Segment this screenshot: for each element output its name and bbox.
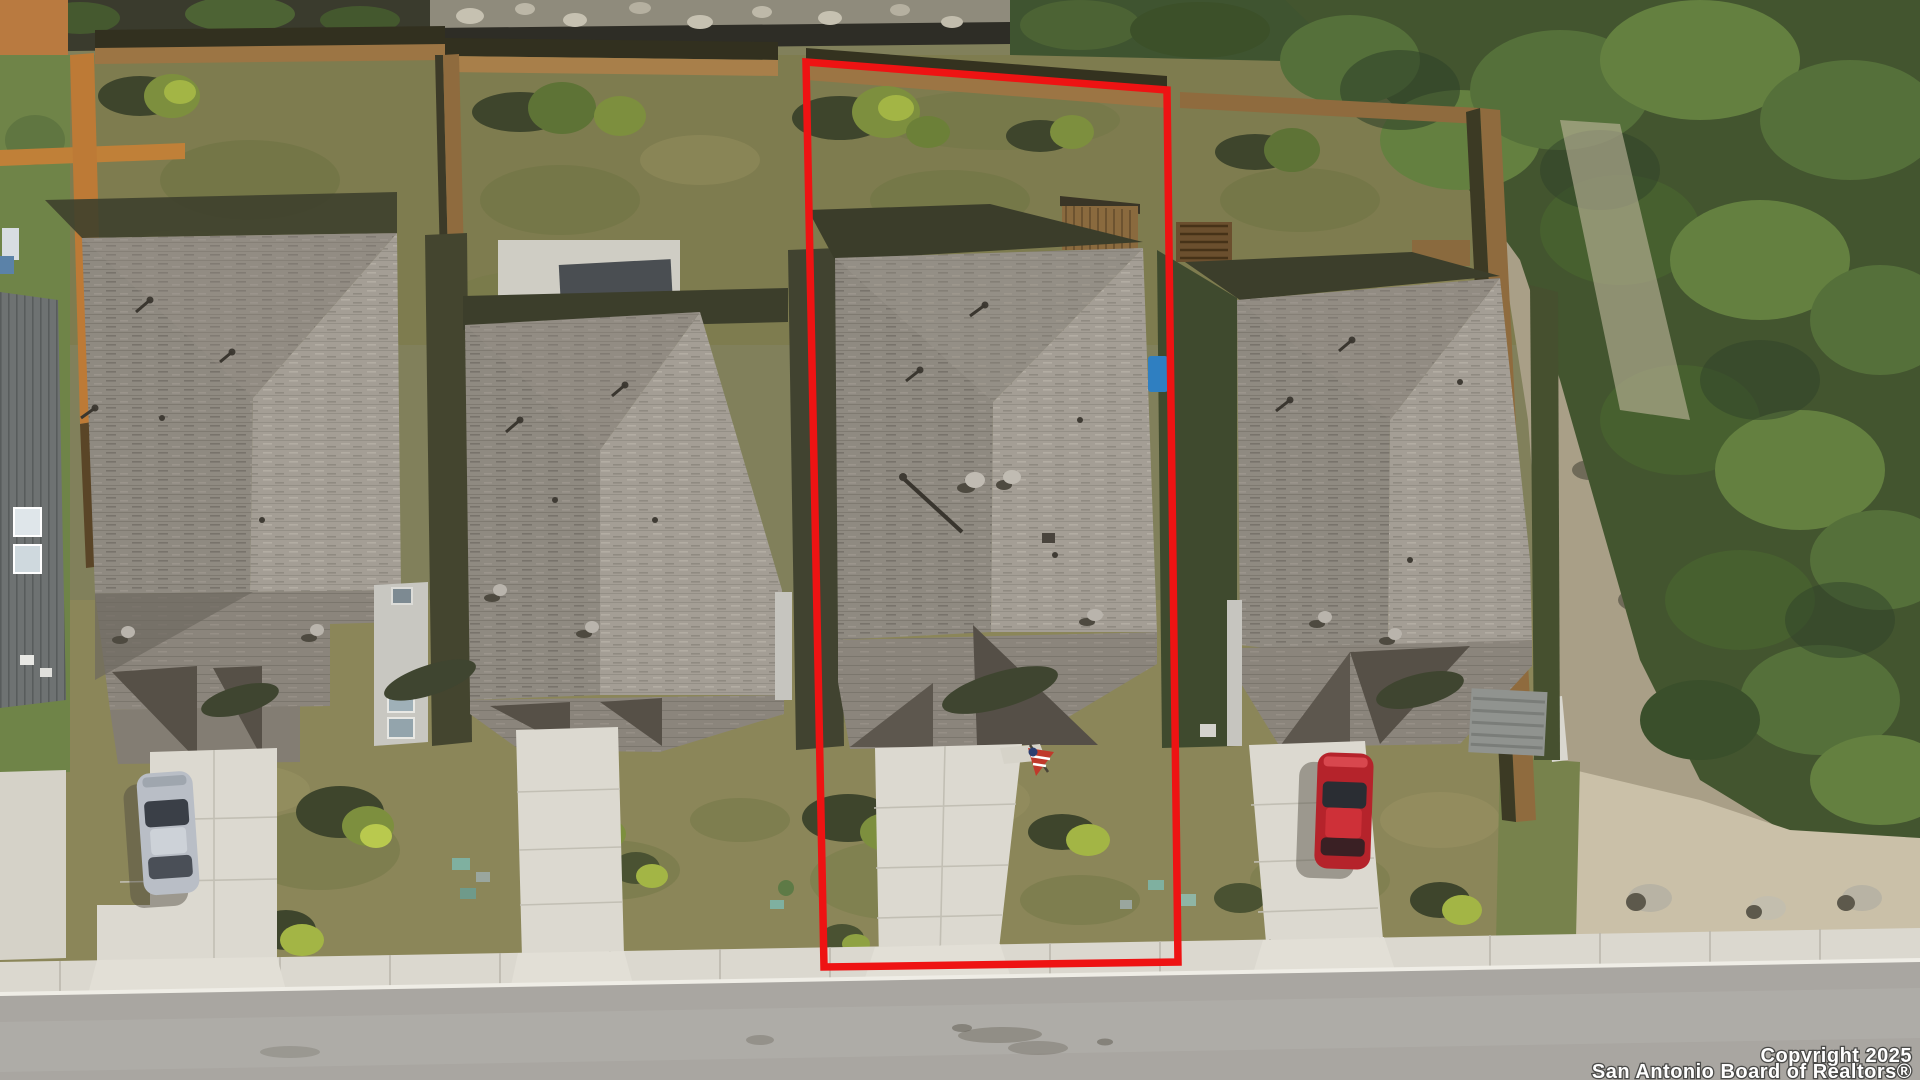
blue-trash-bin	[1148, 356, 1168, 392]
ac-unit	[1200, 724, 1216, 737]
copyright-line-2: San Antonio Board of Realtors®	[1592, 1061, 1912, 1080]
aerial-photo-canvas: Copyright 2025 San Antonio Board of Real…	[0, 0, 1920, 1080]
silver-car	[122, 770, 201, 909]
shed	[1468, 688, 1547, 756]
dirt-patch-topleft	[0, 0, 68, 58]
red-car	[1296, 751, 1374, 880]
aerial-photo: Copyright 2025 San Antonio Board of Real…	[0, 0, 1920, 1080]
subject-house	[808, 204, 1168, 749]
driveway-2	[516, 727, 624, 958]
